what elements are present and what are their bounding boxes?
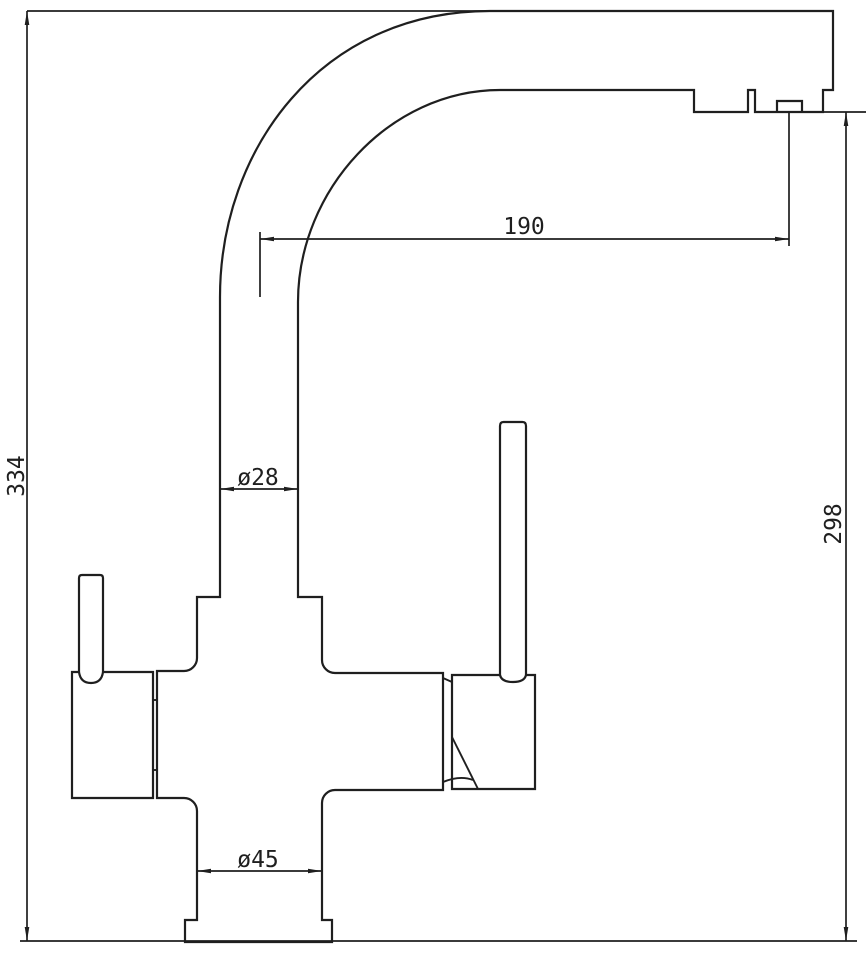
handle-left-base	[72, 672, 153, 798]
dim-spout-reach-arrow-left	[260, 237, 274, 242]
dim-overall-height-arrow-bottom	[25, 927, 30, 941]
handle-right-lever	[500, 422, 526, 675]
handle-right-diagonal-line	[452, 737, 478, 789]
dim-base-diameter-label: ø45	[237, 847, 279, 873]
handle-right-base	[452, 675, 535, 789]
dim-base-diameter-arrow-left	[197, 869, 211, 874]
handle-left-lever	[79, 575, 103, 672]
dim-outlet-height-arrow-bottom	[844, 927, 849, 941]
dim-base-diameter-arrow-right	[308, 869, 322, 874]
dim-spout-reach: 190	[260, 112, 789, 297]
seam-right-top-tick	[443, 678, 452, 682]
dim-overall-height-label: 334	[4, 455, 30, 497]
handle-left-group	[72, 575, 157, 798]
dim-column-diameter-arrow-right	[284, 487, 298, 492]
drawing-sheet: 334 298 190 ø28 ø45	[0, 0, 868, 956]
handle-right-group	[443, 422, 535, 789]
aerator-insert	[777, 101, 802, 112]
handle-right-lever-cap-arc	[500, 675, 526, 682]
dim-spout-reach-arrow-right	[775, 237, 789, 242]
dim-overall-height: 334	[4, 11, 857, 941]
drawing-canvas: 334 298 190 ø28 ø45	[0, 0, 868, 956]
dim-base-diameter: ø45	[197, 847, 322, 873]
handle-right-bottom-arc	[443, 778, 473, 782]
dim-column-diameter-arrow-left	[220, 487, 234, 492]
dim-column-diameter: ø28	[220, 465, 298, 491]
dim-overall-height-arrow-top	[25, 11, 30, 25]
dim-outlet-height-label: 298	[821, 503, 847, 545]
dim-outlet-height-arrow-top	[844, 112, 849, 126]
dim-outlet-height: 298	[821, 112, 866, 941]
handle-left-lever-cap-arc	[79, 672, 103, 683]
dim-spout-reach-label: 190	[503, 214, 545, 240]
dim-column-diameter-label: ø28	[237, 465, 279, 491]
